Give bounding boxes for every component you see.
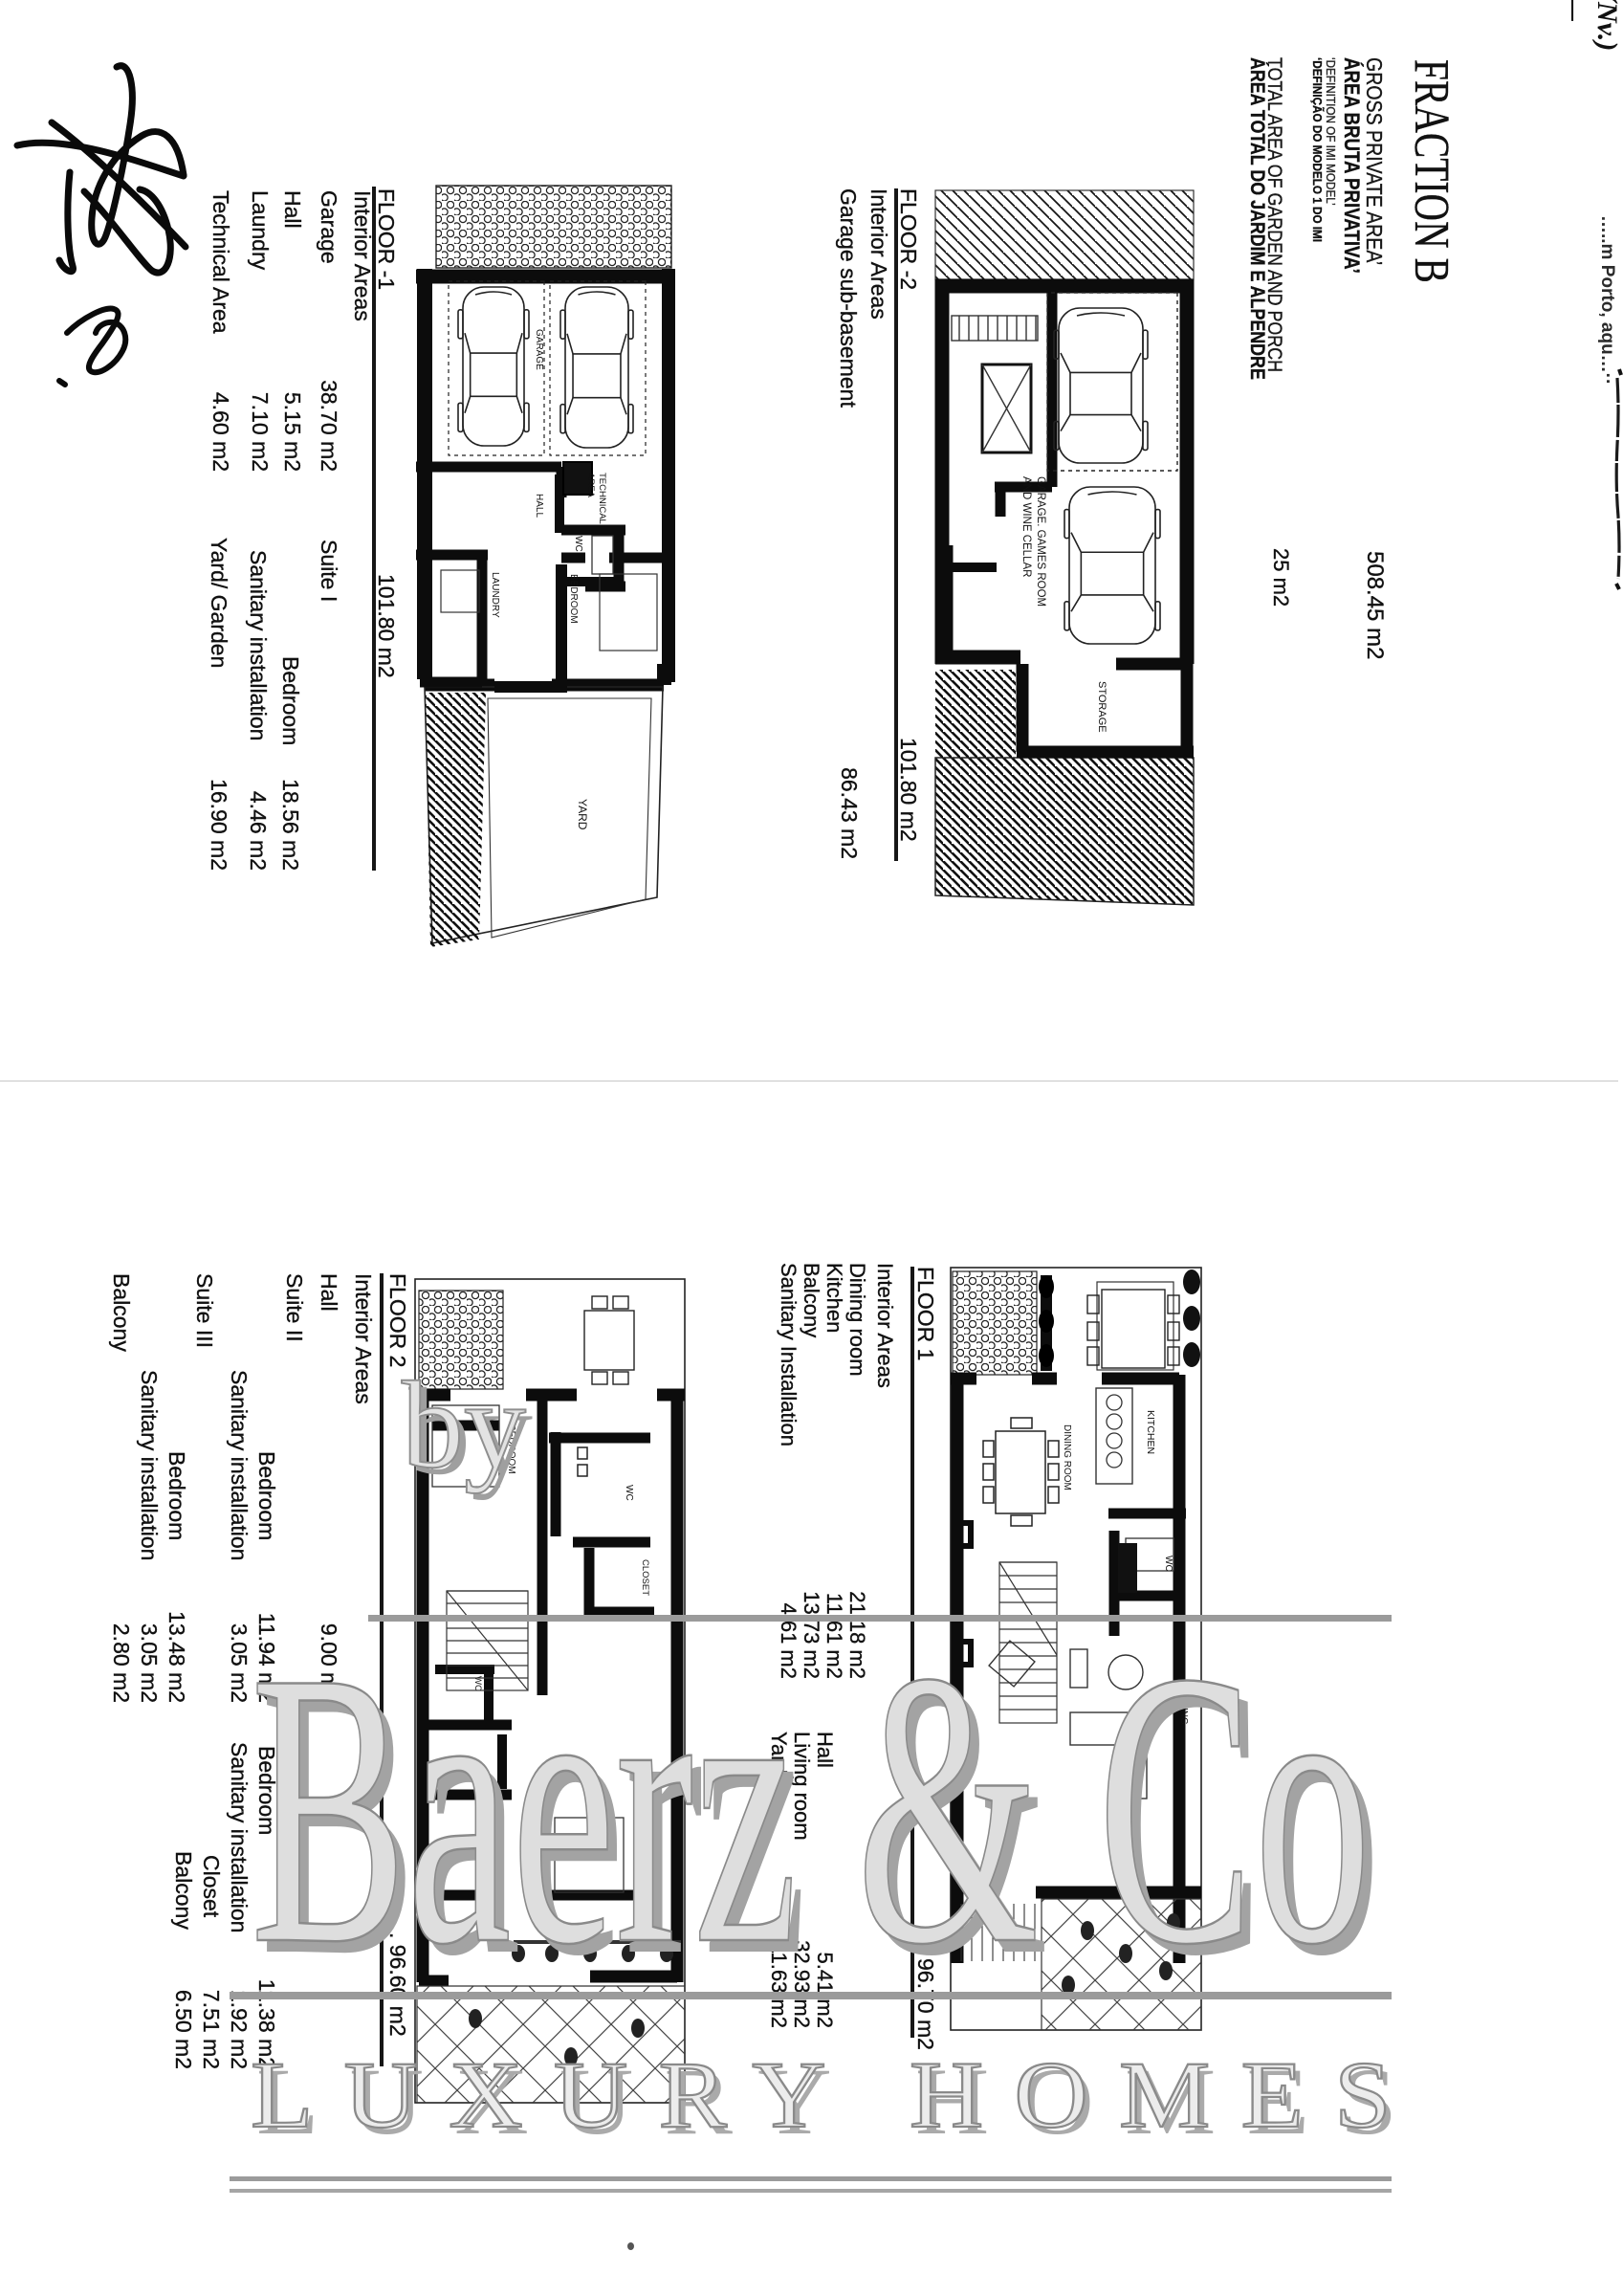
svg-text:GARAGE. GAMES ROOM: GARAGE. GAMES ROOM (1035, 476, 1046, 607)
svg-text:YARD: YARD (576, 799, 589, 830)
svg-text:LUXURY HOMES: LUXURY HOMES (251, 2042, 1422, 2148)
svg-text:HALL: HALL (534, 494, 544, 518)
svg-text:TECHNICAL: TECHNICAL (597, 473, 607, 524)
svg-text:WC: WC (573, 536, 583, 552)
svg-text:BEDROOM: BEDROOM (568, 574, 579, 624)
svg-text:AREA: AREA (585, 473, 596, 498)
svg-text:AND WINE CELLAR: AND WINE CELLAR (1020, 476, 1032, 577)
svg-text:Baerz & Co: Baerz & Co (251, 1591, 1371, 2025)
svg-text:GARAGE: GARAGE (534, 329, 544, 370)
svg-text:STORAGE: STORAGE (1096, 681, 1108, 733)
svg-text:LAUNDRY: LAUNDRY (490, 572, 500, 618)
svg-text:by: by (402, 1357, 526, 1494)
